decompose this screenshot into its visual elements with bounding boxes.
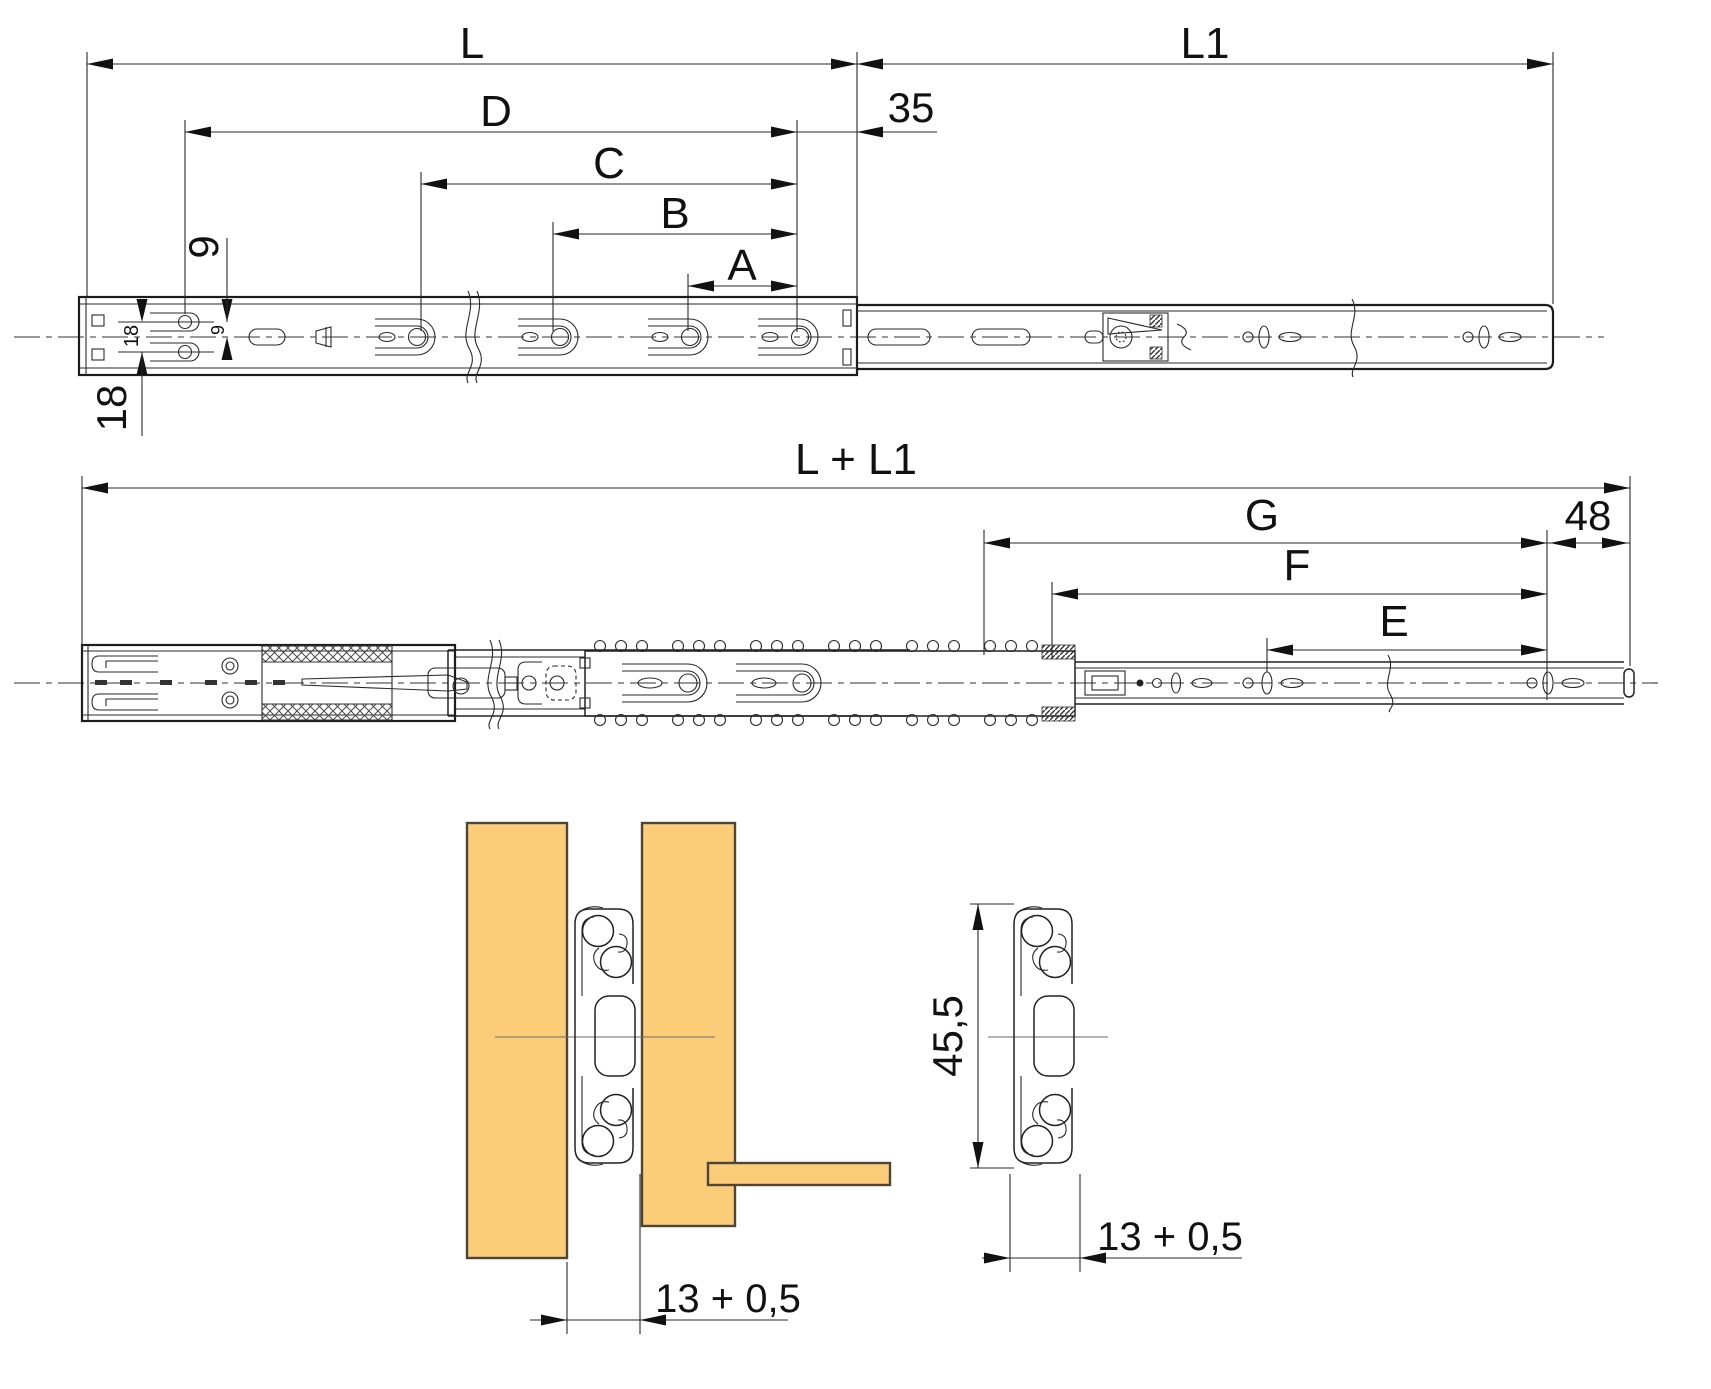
end-section-view: 45,5 13 + 0,5 <box>924 904 1243 1272</box>
drawer-bottom-panel <box>708 1163 890 1185</box>
dimension-height: 45,5 <box>924 904 1014 1168</box>
cage-end-stop-bottom <box>1042 707 1075 721</box>
dimension-clearance-right: 13 + 0,5 <box>982 1174 1243 1272</box>
dim-label-18: 18 <box>88 385 135 432</box>
dimensions-closed: L L1 D C B A 35 9 18 18 9 <box>87 19 1553 436</box>
dim-arrows-closed <box>87 59 1553 376</box>
closed-view: L L1 D C B A 35 9 18 18 9 <box>14 19 1604 436</box>
dim-label-48: 48 <box>1565 492 1612 539</box>
dim-label-C: C <box>593 139 625 188</box>
dim-label-E: E <box>1379 597 1408 646</box>
dim-label-total: L + L1 <box>795 435 917 484</box>
dim-label-B: B <box>660 189 689 238</box>
dim-label-F: F <box>1284 541 1311 590</box>
dim-label-9-small: 9 <box>208 325 228 335</box>
cage-end-stop-top <box>1042 645 1075 659</box>
dim-label-18-small: 18 <box>121 325 143 347</box>
dim-label-D: D <box>480 87 512 136</box>
hatched-collar-top <box>262 646 392 662</box>
dim-label-clearance-left: 13 + 0,5 <box>655 1277 801 1321</box>
technical-drawing-page: L L1 D C B A 35 9 18 18 9 <box>0 0 1711 1389</box>
dim-label-9: 9 <box>180 235 227 258</box>
dim-label-L1: L1 <box>1181 19 1230 68</box>
square-hole <box>92 315 104 326</box>
inner-rail-closed <box>857 299 1553 377</box>
square-hole <box>92 349 104 360</box>
dim-label-clearance-right: 13 + 0,5 <box>1097 1215 1243 1259</box>
dim-label-G: G <box>1245 491 1279 540</box>
drawer-slide-diagram: L L1 D C B A 35 9 18 18 9 <box>0 0 1711 1389</box>
extended-view: L + L1 G F E 48 <box>14 435 1658 729</box>
dim-label-35: 35 <box>888 84 935 131</box>
dim-label-A: A <box>727 241 757 290</box>
cabinet-side-panel <box>467 823 567 1258</box>
dim-label-height: 45,5 <box>924 995 971 1077</box>
hatched-collar-bottom <box>262 704 392 720</box>
dim-label-L: L <box>460 19 484 68</box>
installed-section-view: 13 + 0,5 <box>467 823 890 1334</box>
